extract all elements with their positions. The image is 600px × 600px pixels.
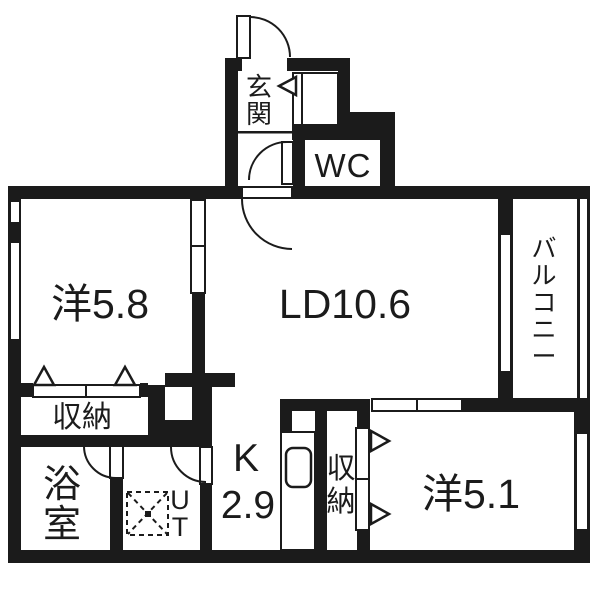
door-leaf-wc <box>282 142 293 184</box>
folding-door-triangle-storage-top <box>371 431 389 451</box>
balcony-rail-inner <box>577 199 580 398</box>
wall-storage-bedroom-bottom <box>357 530 370 550</box>
wall-closet-jamb-left <box>21 383 33 397</box>
folding-door-closet-panel2 <box>86 385 140 397</box>
wall-bottom <box>8 550 590 563</box>
floor-plan-page: 洋5.8 LD10.6 洋5.1 K 2.9 WC 収納 玄関 浴室 UT 収納… <box>0 0 600 600</box>
wall-ld-bottom-right <box>462 398 590 412</box>
folding-door-triangle-closet-left <box>34 367 54 385</box>
label-western-room-b: 洋5.1 <box>422 471 520 517</box>
window-left-bedroomA <box>10 242 20 340</box>
kitchen-notch <box>292 411 315 432</box>
label-entrance: 玄関 <box>246 72 272 129</box>
label-kitchen-size: 2.9 <box>221 484 275 527</box>
door-swing-arc-hall-ld <box>242 199 292 249</box>
door-leaf-hall-ld <box>242 187 292 198</box>
label-living-dining: LD10.6 <box>279 281 411 327</box>
wall-slot-cap <box>165 420 192 435</box>
wall-kitchen-left-lower <box>200 483 212 550</box>
window-right-bedroomB <box>576 433 588 530</box>
washing-machine-dot <box>145 511 151 517</box>
wall-entrance-left <box>225 58 238 199</box>
wall-entrance-top-left <box>225 58 242 71</box>
wall-wc-top-inner <box>292 125 380 140</box>
wall-closet-jamb-right <box>140 383 148 397</box>
sliding-door-bedroomA-panel1 <box>191 200 205 246</box>
wall-storage-hall-right <box>148 385 165 435</box>
wall-junction-horizontal <box>165 373 235 387</box>
label-storage-bedroom: 収納 <box>326 453 355 518</box>
folding-door-triangle-closet-right <box>115 367 135 385</box>
door-leaf-entrance <box>237 16 250 58</box>
folding-door-storage-bedroom-panel2 <box>356 479 369 530</box>
label-wc: WC <box>315 147 372 184</box>
floor-plan: 洋5.8 LD10.6 洋5.1 K 2.9 WC 収納 玄関 浴室 UT 収納… <box>0 0 600 600</box>
kitchen-sink <box>286 448 311 487</box>
shoe-cabinet-triangle <box>279 77 296 95</box>
label-kitchen: K <box>233 437 259 480</box>
wall-kitchen-notch-left <box>280 411 292 432</box>
wall-storage-bedroom-top <box>357 411 370 428</box>
sliding-door-bedroomB-panel2 <box>417 399 462 411</box>
folding-door-closet-panel1 <box>33 385 86 397</box>
label-storage-hall: 収納 <box>52 401 112 434</box>
label-western-room-a: 洋5.8 <box>51 281 149 327</box>
folding-door-triangle-storage-bottom <box>371 504 389 524</box>
wall-kitchen-top <box>280 399 370 411</box>
label-utility: UT <box>170 485 190 542</box>
label-balcony: バルコニー <box>531 235 556 371</box>
label-bathroom: 浴室 <box>43 464 81 546</box>
door-leaf-bathroom <box>110 446 123 478</box>
wall-bath-right-lower <box>110 477 123 550</box>
window-ld-balcony <box>500 234 511 372</box>
sliding-door-bedroomB-panel1 <box>372 399 417 411</box>
wall-hall-wc <box>293 140 305 186</box>
door-swing-arc-entrance <box>250 17 290 57</box>
window-left-small <box>10 201 20 223</box>
wall-wc-right <box>380 112 395 199</box>
wall-bedroomA-ld <box>192 292 205 373</box>
entrance-step-line <box>238 131 293 134</box>
door-leaf-utility <box>200 447 212 484</box>
wall-kitchen-storage <box>315 411 327 550</box>
balcony-rail-outer <box>587 199 590 398</box>
sliding-door-bedroomA-panel2 <box>191 246 205 293</box>
folding-door-storage-bedroom-panel1 <box>356 428 369 479</box>
wall-top <box>8 186 590 199</box>
